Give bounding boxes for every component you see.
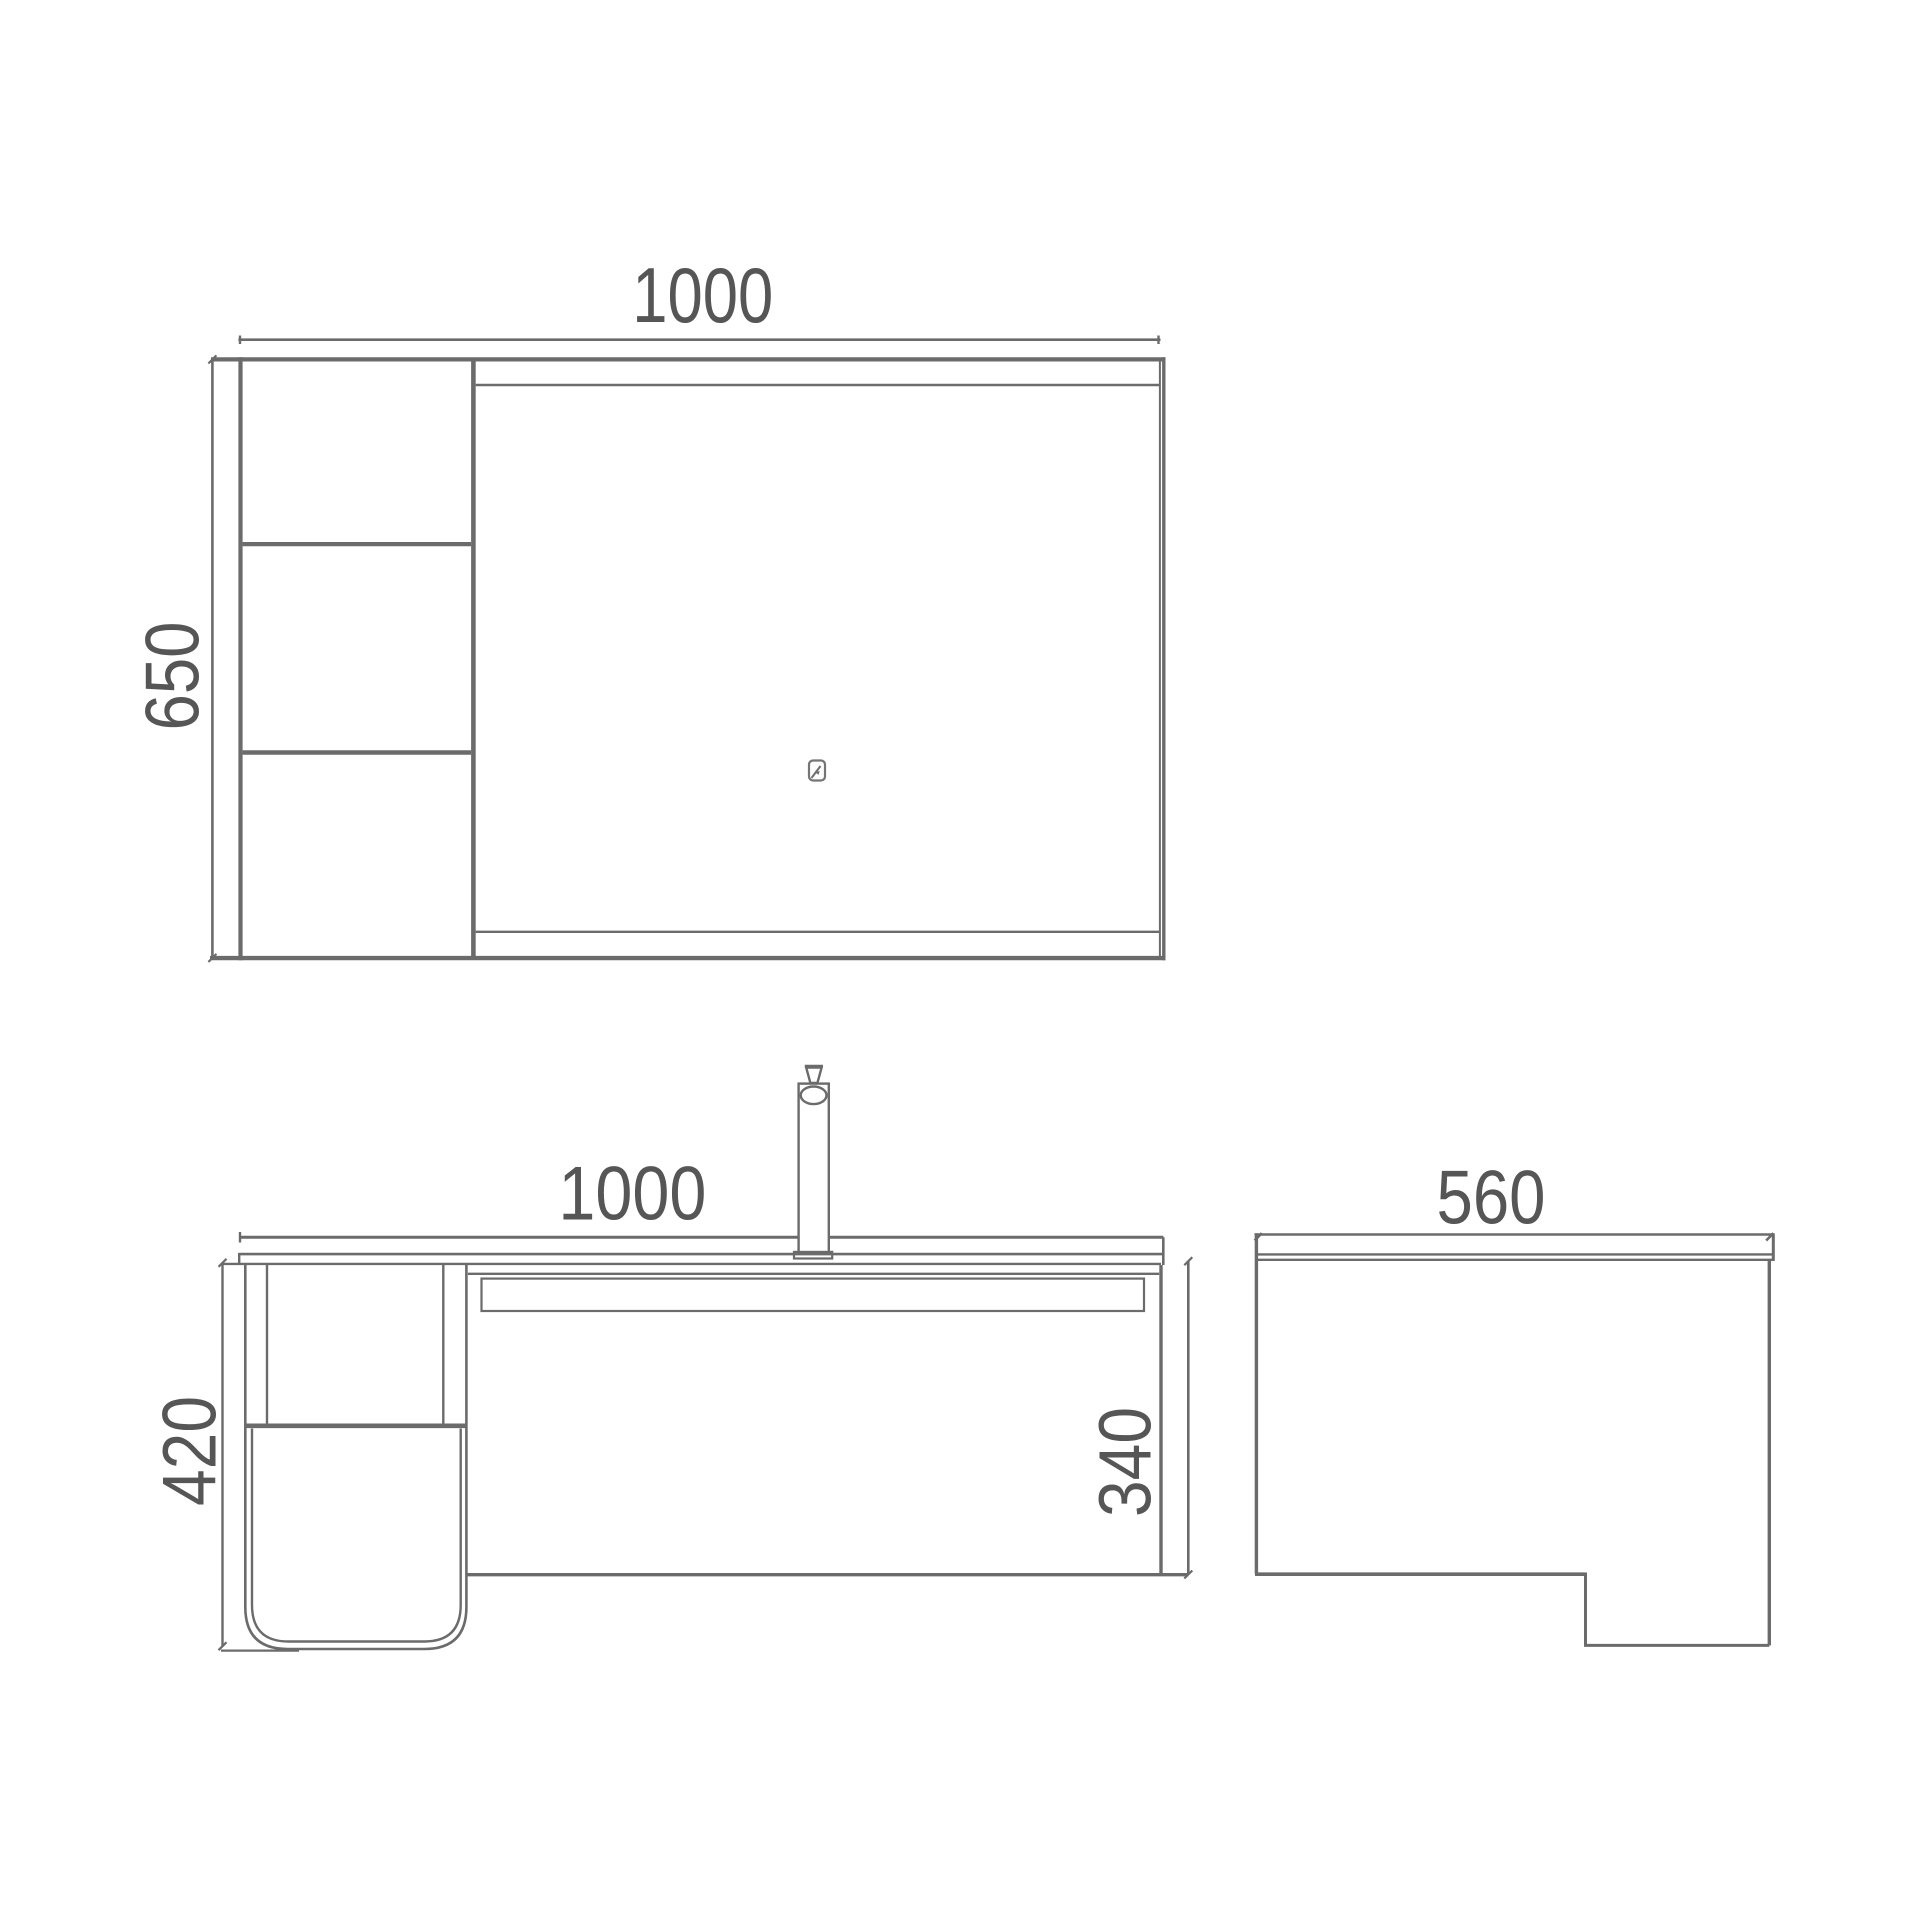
- svg-text:650: 650: [131, 622, 216, 731]
- svg-text:1000: 1000: [558, 1152, 706, 1237]
- svg-text:1000: 1000: [632, 251, 773, 339]
- svg-text:560: 560: [1437, 1156, 1546, 1241]
- svg-text:340: 340: [1084, 1407, 1167, 1517]
- svg-text:420: 420: [148, 1396, 233, 1506]
